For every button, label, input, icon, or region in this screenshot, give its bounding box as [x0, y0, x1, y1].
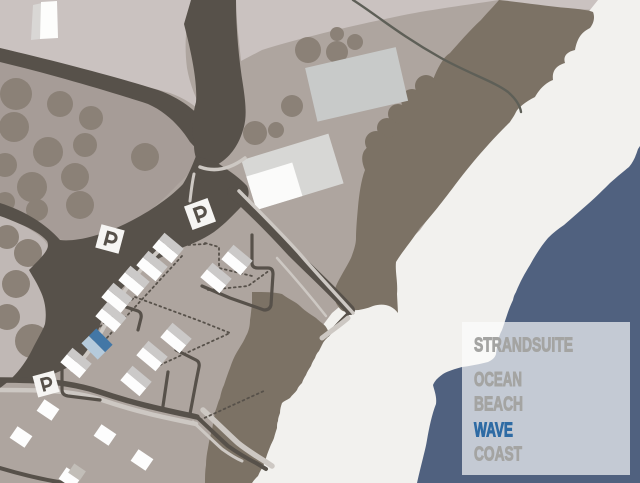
- svg-text:STRANDSUITE: STRANDSUITE: [474, 335, 573, 357]
- svg-text:OCEAN: OCEAN: [474, 369, 522, 391]
- svg-text:WAVE: WAVE: [474, 420, 513, 442]
- svg-text:BEACH: BEACH: [474, 394, 523, 416]
- svg-text:COAST: COAST: [474, 444, 522, 466]
